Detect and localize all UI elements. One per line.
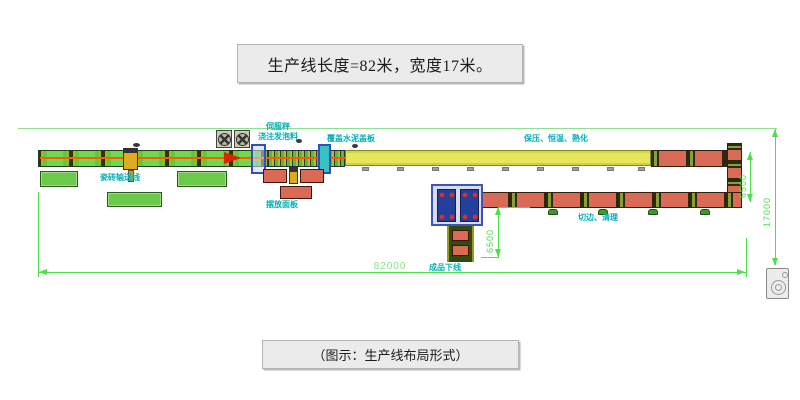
dim-text-17000: 17000 xyxy=(762,167,772,227)
panel-block xyxy=(280,186,312,199)
label-pour-station: 伺服秤 浇注发泡料 xyxy=(246,122,310,142)
cutter-module xyxy=(460,189,479,222)
dim-text-6500-right: 6500 xyxy=(738,158,748,198)
support-foot-icon xyxy=(548,209,558,215)
dim-text-82000: 82000 xyxy=(350,261,430,272)
flow-arrow-icon xyxy=(224,152,241,164)
dim-arrow-icon xyxy=(495,207,501,215)
panel-block xyxy=(300,169,324,183)
cutter-module xyxy=(437,189,456,222)
offline-conveyor xyxy=(447,226,474,262)
dim-ext-line xyxy=(481,257,499,258)
flow-center-line xyxy=(40,157,345,159)
label-pour-foam: 浇注发泡料 xyxy=(246,132,310,142)
caption-text: （图示：生产线布局形式） xyxy=(312,345,468,364)
panel-block xyxy=(263,169,287,183)
dim-arrow-icon xyxy=(772,258,778,266)
dim-text-6500-mid: 6500 xyxy=(485,213,495,253)
sensor-icon xyxy=(133,143,140,147)
return-conveyor xyxy=(473,192,742,208)
support-foot-icon xyxy=(537,167,544,171)
top-boundary-line xyxy=(18,128,777,129)
support-foot-icon xyxy=(502,167,509,171)
label-place-panels: 摆放面板 xyxy=(266,200,298,210)
support-foot-icon xyxy=(700,209,710,215)
support-foot-icon xyxy=(607,167,614,171)
support-foot-icon xyxy=(648,209,658,215)
support-foot-icon xyxy=(467,167,474,171)
label-trim-clean: 切边、清理 xyxy=(578,213,618,223)
label-metering: 伺服秤 xyxy=(246,122,310,132)
label-tile-conveyor: 瓷砖输送线 xyxy=(100,173,140,183)
transfer-lift xyxy=(123,148,138,170)
support-foot-icon xyxy=(432,167,439,171)
mixer-icon xyxy=(216,130,250,148)
caption-box: （图示：生产线布局形式） xyxy=(262,340,519,369)
support-foot-icon xyxy=(572,167,579,171)
dim-line-82000 xyxy=(38,272,746,273)
dim-ext-line xyxy=(498,207,530,208)
buffer-block xyxy=(40,171,78,187)
panel-lift xyxy=(289,167,298,184)
dim-arrow-icon xyxy=(39,269,47,275)
mixer-fan-icon xyxy=(216,130,232,148)
label-cement-cover: 覆盖水泥盖板 xyxy=(327,134,375,144)
sensor-icon xyxy=(352,144,358,148)
dim-arrow-icon xyxy=(495,249,501,257)
dim-ext-line xyxy=(746,238,747,277)
main-conveyor-right xyxy=(651,150,727,167)
buffer-block xyxy=(177,171,227,187)
product-block xyxy=(452,245,469,256)
dim-ext-line xyxy=(38,192,39,277)
dim-arrow-icon xyxy=(772,129,778,137)
buffer-block xyxy=(107,192,162,207)
curing-tunnel xyxy=(345,150,651,166)
support-foot-icon xyxy=(397,167,404,171)
product-block xyxy=(452,230,469,241)
support-foot-icon xyxy=(638,167,645,171)
pump-icon xyxy=(766,268,789,299)
label-curing: 保压、恒温、熟化 xyxy=(524,134,588,144)
cutter-machine xyxy=(431,184,483,226)
dim-arrow-icon xyxy=(737,269,745,275)
dim-line-17000 xyxy=(775,129,776,265)
support-foot-icon xyxy=(362,167,369,171)
